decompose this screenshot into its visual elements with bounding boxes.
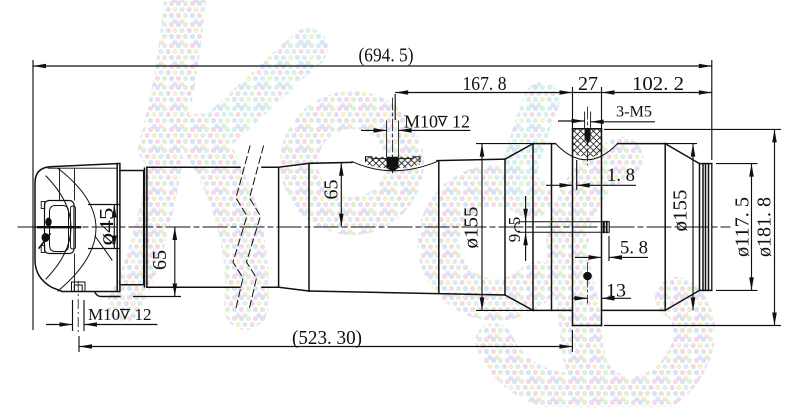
svg-text:5. 8: 5. 8 xyxy=(620,238,648,259)
svg-text:1. 8: 1. 8 xyxy=(607,165,635,186)
svg-text:ø117. 5: ø117. 5 xyxy=(732,197,754,257)
svg-text:M10: M10 xyxy=(88,305,120,324)
svg-text:27: 27 xyxy=(578,73,598,95)
svg-text:(523. 30): (523. 30) xyxy=(292,327,362,349)
svg-text:12: 12 xyxy=(135,305,152,324)
svg-text:ø45: ø45 xyxy=(96,208,118,246)
svg-text:ø155: ø155 xyxy=(670,190,692,232)
svg-text:ø181. 8: ø181. 8 xyxy=(754,197,776,257)
svg-text:12: 12 xyxy=(452,112,470,132)
svg-text:ø155: ø155 xyxy=(461,207,483,249)
svg-text:M10: M10 xyxy=(404,112,438,132)
svg-text:3-M5: 3-M5 xyxy=(616,104,652,121)
svg-text:65: 65 xyxy=(321,180,343,200)
svg-text:65: 65 xyxy=(149,250,171,270)
svg-text:9. 5: 9. 5 xyxy=(505,217,524,243)
svg-text:102. 2: 102. 2 xyxy=(632,73,684,95)
svg-text:167. 8: 167. 8 xyxy=(463,73,507,95)
svg-text:13: 13 xyxy=(606,281,626,302)
svg-text:(694. 5): (694. 5) xyxy=(359,45,414,67)
